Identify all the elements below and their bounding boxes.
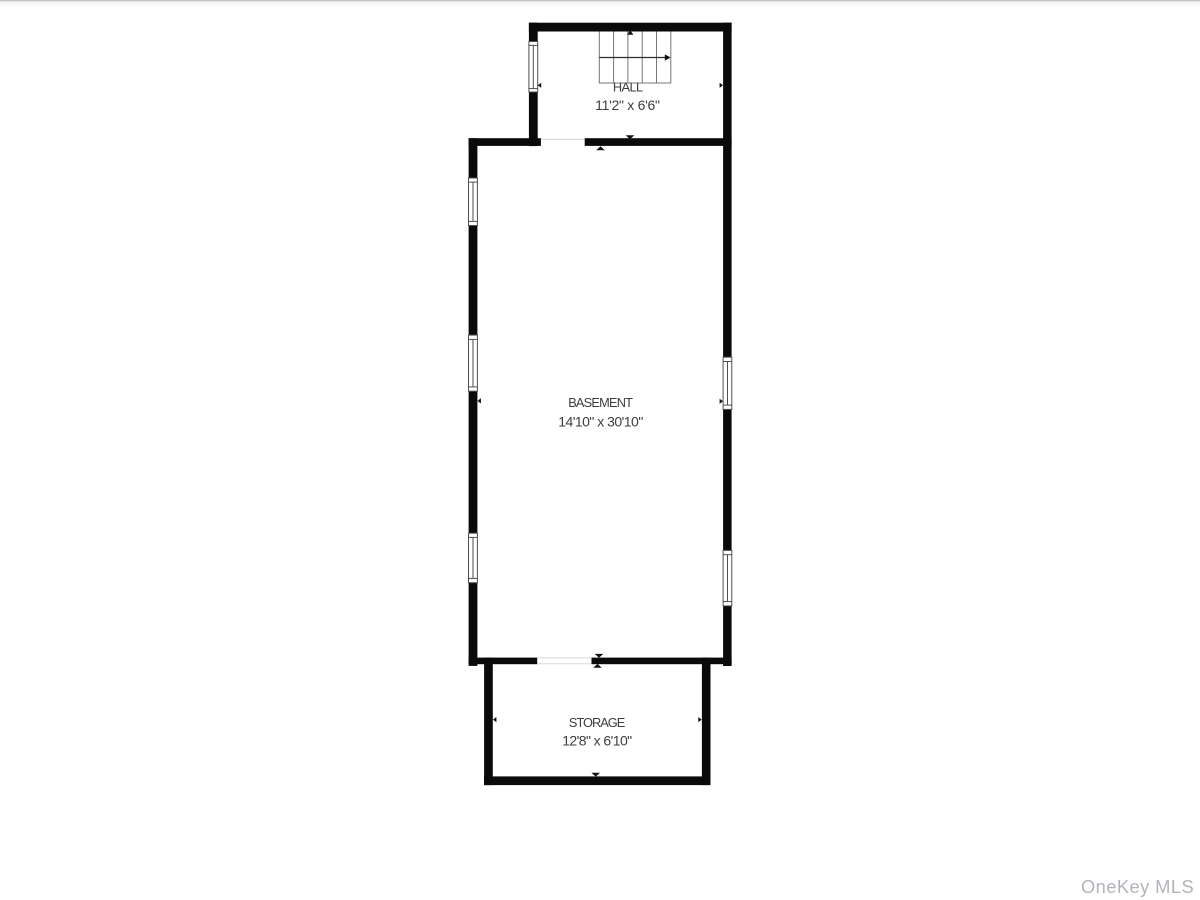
svg-text:OneKey MLS: OneKey MLS	[1081, 876, 1194, 897]
svg-text:11'2" x 6'6": 11'2" x 6'6"	[595, 97, 660, 113]
svg-text:BASEMENT: BASEMENT	[568, 395, 633, 410]
svg-text:STORAGE: STORAGE	[569, 715, 625, 730]
svg-text:14'10" x 30'10": 14'10" x 30'10"	[558, 414, 643, 430]
svg-text:12'8" x 6'10": 12'8" x 6'10"	[562, 733, 632, 749]
svg-text:HALL: HALL	[613, 80, 643, 95]
